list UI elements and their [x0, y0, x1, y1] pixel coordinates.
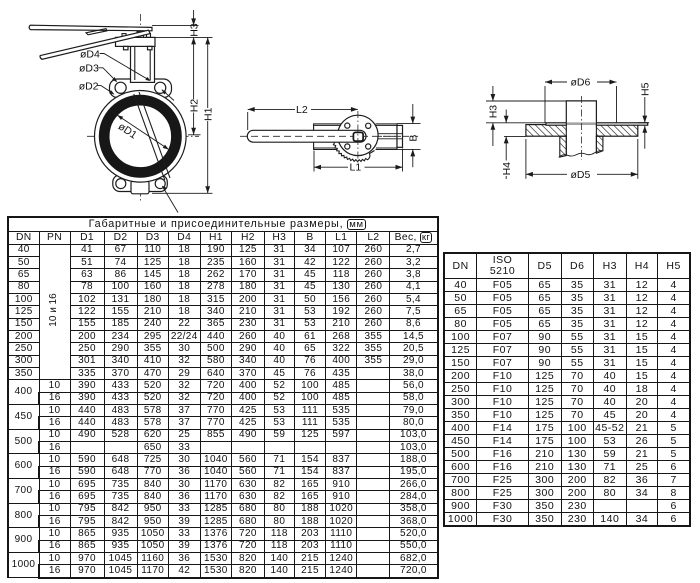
svg-text:H4: H4 — [501, 162, 513, 176]
svg-text:B: B — [408, 135, 420, 142]
svg-text:øD5: øD5 — [571, 169, 591, 181]
svg-text:H2: H2 — [188, 99, 200, 113]
svg-text:H3: H3 — [488, 105, 500, 119]
svg-text:H1: H1 — [202, 107, 214, 121]
svg-text:øD3: øD3 — [79, 63, 99, 75]
svg-text:øD6: øD6 — [571, 77, 591, 89]
svg-text:H3: H3 — [189, 23, 201, 37]
svg-text:H5: H5 — [640, 82, 652, 96]
svg-text:L2: L2 — [296, 104, 308, 116]
svg-text:øD2: øD2 — [79, 80, 99, 92]
svg-text:L1: L1 — [350, 162, 362, 174]
svg-text:øD4: øD4 — [80, 49, 100, 61]
